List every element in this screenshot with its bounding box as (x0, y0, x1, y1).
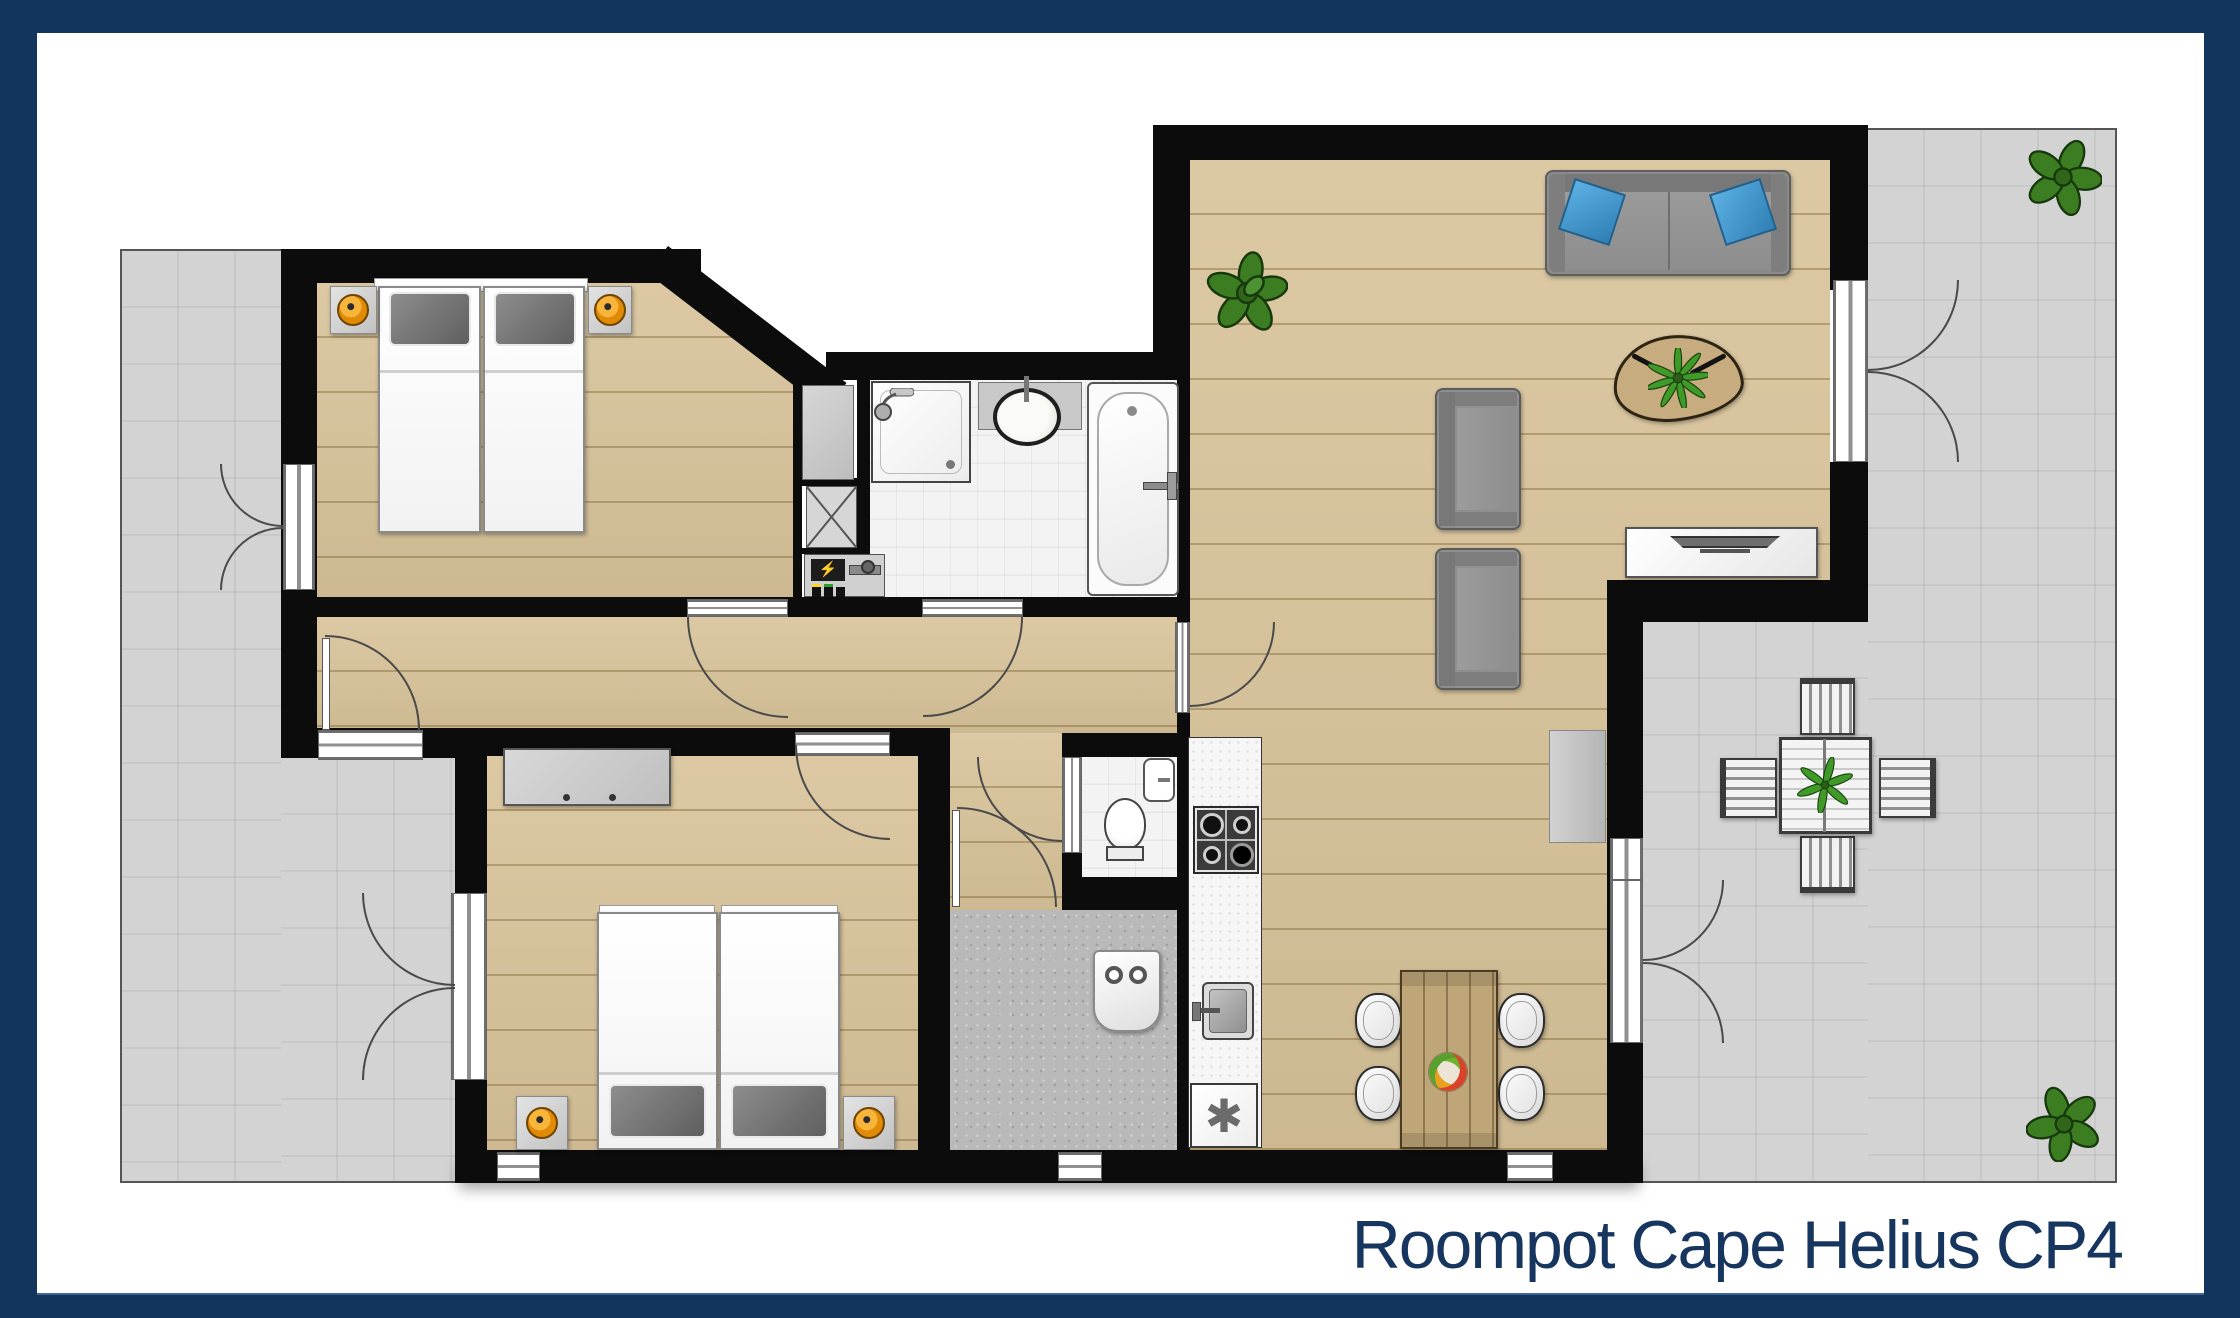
radiator-panel (1549, 730, 1606, 843)
toilet-sink (1143, 758, 1175, 802)
terrace-plant-icon (2024, 138, 2102, 216)
burner (1203, 846, 1221, 864)
dining-chair (1498, 993, 1545, 1048)
terrace-plant-icon (2026, 1086, 2102, 1162)
corridor-terrace-door (318, 730, 423, 760)
french-door-dining (1610, 880, 1643, 1043)
wall-bedroom2-right (918, 728, 950, 1150)
lamp-icon (337, 294, 369, 326)
shower-drain (946, 460, 955, 469)
wall-toilet-top (1062, 733, 1190, 757)
wall-bottom (455, 1150, 1643, 1183)
bed-pillow (494, 292, 576, 346)
lamp-icon (594, 294, 626, 326)
outdoor-chair (1720, 758, 1777, 818)
kitchen-hob (1193, 806, 1259, 874)
boiler-socket (1105, 966, 1123, 984)
boiler-socket (1129, 966, 1147, 984)
wall-living-right-upper (1830, 125, 1868, 290)
wall-living-top (1153, 125, 1868, 160)
floorplan-canvas: ⚡ ✱ (0, 0, 2240, 1318)
living-plant-icon (1206, 240, 1288, 346)
bed-pillow (609, 1084, 706, 1138)
duvet-fold (599, 1072, 716, 1075)
armchair-arm (1455, 672, 1517, 686)
dining-chair (1498, 1066, 1545, 1121)
duvet-fold (485, 370, 583, 373)
bedroom1-door (687, 599, 788, 617)
dining-chair (1355, 1066, 1402, 1121)
tv-stand (1700, 549, 1750, 553)
wardrobe (802, 385, 854, 480)
armchair (1435, 548, 1521, 690)
burner (1230, 843, 1254, 867)
wall-bathroom-top (826, 352, 1190, 380)
lamp-icon (853, 1107, 885, 1139)
dining-window-east (1610, 838, 1643, 880)
shaft-cross-icon (807, 487, 856, 547)
fuse-block (812, 584, 821, 597)
front-door (1058, 1152, 1102, 1181)
wall-living-step (1607, 580, 1868, 622)
armchair-seat (1457, 568, 1515, 670)
sink-tap-base (1192, 1002, 1201, 1021)
fruit-bowl (1428, 1052, 1468, 1092)
tv-icon (1670, 536, 1780, 548)
lamp-icon (526, 1107, 558, 1139)
sofa-seam (1668, 192, 1670, 270)
terrace-left (120, 249, 281, 1183)
toilet-tank (1106, 846, 1144, 861)
french-door-bedroom1 (283, 464, 315, 590)
duvet-fold (380, 370, 479, 373)
freezer-symbol: ✱ (1205, 1090, 1244, 1142)
toilet-sink-tap (1158, 778, 1170, 782)
dining-chair (1355, 993, 1402, 1048)
coffee-table-plant-icon (1648, 348, 1708, 408)
wall-mid-upper (1177, 597, 1190, 622)
bed-pillow (731, 1084, 828, 1138)
outdoor-chair (1800, 836, 1855, 893)
meter-valve (861, 560, 875, 574)
technical-shaft (806, 486, 857, 548)
meter-box: ⚡ (811, 559, 845, 581)
wall-utility-left (793, 376, 802, 597)
armchair-back (1439, 392, 1455, 526)
boiler-unit (1093, 950, 1161, 1032)
outdoor-table-plant-icon (1797, 757, 1853, 813)
dining-window-south (1507, 1152, 1553, 1181)
bathtub (1087, 382, 1179, 596)
bathtub-drain (1127, 406, 1137, 416)
living-door (1175, 622, 1190, 713)
meter-cupboard: ⚡ (804, 554, 885, 597)
bedroom2-window (497, 1152, 540, 1181)
freezer: ✱ (1190, 1083, 1258, 1148)
wall-living-left (1153, 125, 1190, 380)
burner (1200, 813, 1224, 837)
dresser-handle (609, 794, 616, 801)
french-door-bedroom2 (451, 893, 487, 1080)
armchair-arm (1455, 512, 1517, 526)
toilet (1104, 798, 1146, 850)
frame-accent-line (37, 1293, 2204, 1295)
page-title: Roompot Cape Helius CP4 (1352, 1206, 2122, 1284)
armchair-seat (1457, 408, 1515, 510)
armchair-arm (1455, 392, 1517, 406)
tv-sideboard (1625, 527, 1818, 578)
fuse-block (824, 584, 833, 597)
door-leaf (322, 638, 330, 730)
bathroom-door (922, 599, 1023, 617)
outdoor-chair (1800, 678, 1855, 735)
wall-toilet-bottom (1062, 877, 1190, 910)
armchair (1435, 388, 1521, 530)
burner (1233, 816, 1251, 834)
kitchen-sink (1202, 982, 1254, 1040)
door-leaf (952, 810, 960, 907)
bed-pillow (389, 292, 471, 346)
duvet-fold (721, 1072, 838, 1075)
outdoor-chair (1879, 758, 1936, 818)
french-door-living (1833, 280, 1868, 462)
armchair-back (1439, 552, 1455, 686)
toilet-door (1062, 757, 1082, 853)
shower-head-icon (874, 388, 914, 424)
dresser (503, 748, 671, 806)
washbasin-tap (1024, 376, 1029, 402)
armchair-arm (1455, 552, 1517, 566)
fuse-block (836, 584, 845, 597)
bathtub-tap-knob (1167, 472, 1177, 500)
dresser-handle (563, 794, 570, 801)
